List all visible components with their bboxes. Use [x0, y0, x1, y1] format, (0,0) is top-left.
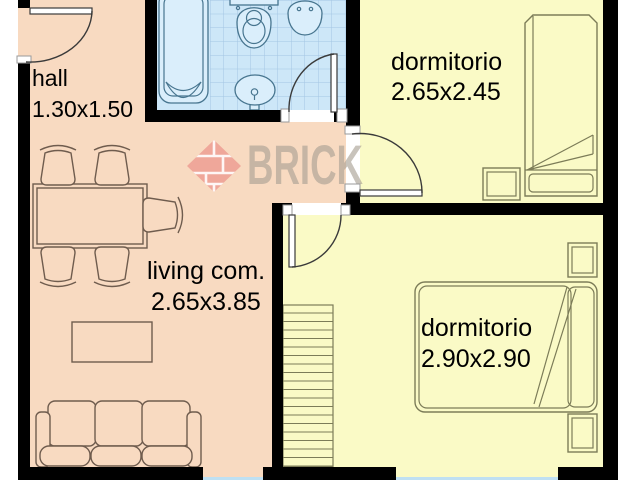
sofa [36, 401, 201, 467]
bathroom-door-leaf [331, 54, 337, 112]
wardrobe [283, 305, 333, 467]
door-jamb [281, 109, 289, 122]
door-jamb [283, 205, 292, 215]
bedroom-top-label: dormitorio [391, 48, 502, 76]
nightstand [483, 168, 520, 200]
bedroom-top-door-leaf [360, 190, 422, 196]
coffee-table [72, 322, 152, 362]
bathroom-tile-grid [210, 0, 346, 110]
bidet [288, 1, 322, 35]
bedroom-bottom-door-leaf [289, 215, 295, 267]
bedroom-bottom-dimensions: 2.90x2.90 [421, 345, 531, 373]
dining-table [33, 184, 147, 248]
entrance-recess-floor [18, 8, 30, 62]
nightstand [568, 243, 597, 277]
hall-label: hall [32, 65, 68, 91]
nightstand [568, 414, 597, 452]
door-jamb [345, 184, 360, 192]
bedroom-top-dimensions: 2.65x2.45 [391, 78, 501, 106]
living-dimensions: 2.65x3.85 [151, 288, 261, 316]
single-bed [525, 15, 597, 196]
bathtub [159, 0, 208, 103]
living-window-recess [203, 467, 263, 477]
brick-watermark: BRICK [185, 133, 363, 196]
floor-plan: BRICK [0, 0, 640, 480]
door-jamb [337, 109, 347, 122]
floor-plan-svg: BRICK [0, 0, 640, 480]
door-jamb [341, 205, 350, 215]
living-label: living com. [147, 257, 265, 285]
entrance-door-leaf [30, 8, 92, 14]
hall-dimensions: 1.30x1.50 [32, 96, 133, 122]
bedroom-window-recess [396, 467, 558, 477]
bedroom-bottom-label: dormitorio [421, 314, 532, 342]
door-jamb [345, 126, 360, 134]
